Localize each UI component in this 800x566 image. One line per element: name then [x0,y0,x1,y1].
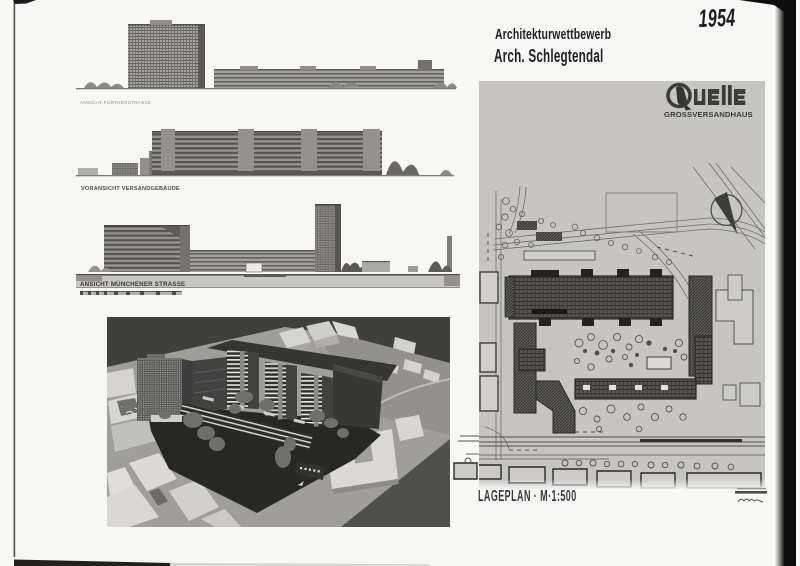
svg-text:ANSICHT FÜRTHERSTRASSE: ANSICHT FÜRTHERSTRASSE [80,99,151,105]
svg-text:GROSSVERSANDHAUS: GROSSVERSANDHAUS [664,110,753,119]
svg-text:ANSICHT MÜNCHENER STRASSE: ANSICHT MÜNCHENER STRASSE [80,281,185,288]
svg-text:VORANSICHT VERSANDGEBÄUDE: VORANSICHT VERSANDGEBÄUDE [81,185,180,192]
svg-text:1954: 1954 [698,4,736,33]
